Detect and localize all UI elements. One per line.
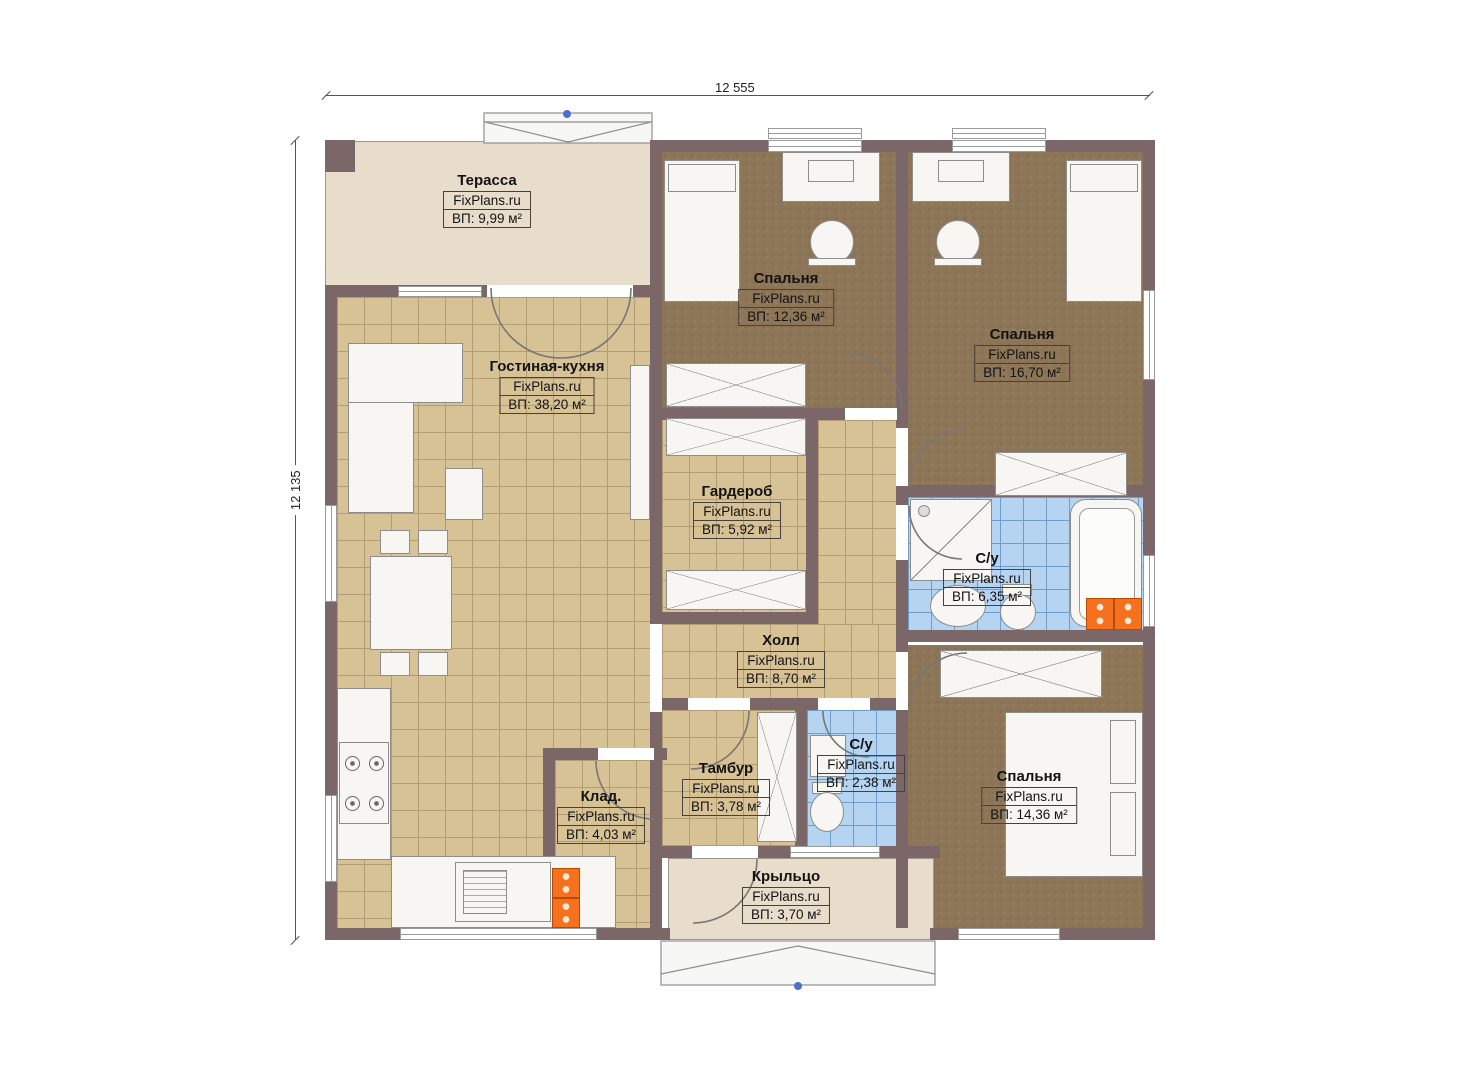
wardrobe-cabinet [666, 570, 806, 610]
room-area: ВП: 3,70 м² [743, 905, 829, 923]
laptop [808, 160, 854, 182]
wall [806, 420, 818, 612]
room-label-hall: Холл FixPlans.ru ВП: 8,70 м² [737, 632, 825, 688]
room-name: С/у [817, 736, 905, 753]
room-label-terrace: Терасса FixPlans.ru ВП: 9,99 м² [443, 172, 531, 228]
porch-steps [660, 940, 936, 986]
room-label-wardrobe: Гардероб FixPlans.ru ВП: 5,92 м² [693, 483, 781, 539]
chair [380, 652, 410, 676]
sink-drainer [463, 870, 507, 914]
brand-watermark: FixPlans.ru [975, 346, 1069, 363]
radiator [1086, 598, 1114, 630]
dimension-top-value: 12 555 [710, 80, 760, 95]
room-label-bathroom: С/у FixPlans.ru ВП: 6,35 м² [943, 550, 1031, 606]
room-area: ВП: 3,78 м² [683, 797, 769, 815]
tv-unit [630, 365, 650, 520]
brand-watermark: FixPlans.ru [444, 192, 530, 209]
window-sill [952, 128, 1046, 139]
window [398, 286, 482, 297]
door-opening [896, 505, 908, 560]
stove [339, 742, 389, 824]
room-label-living-kitchen: Гостиная-кухня FixPlans.ru ВП: 38,20 м² [490, 358, 605, 414]
bedroom3-door-arc [908, 652, 968, 712]
floor-plan: 12 555 12 135 [0, 0, 1474, 1080]
room-label-bedroom3: Спальня FixPlans.ru ВП: 14,36 м² [981, 768, 1077, 824]
toilet [810, 792, 844, 832]
window-sill [768, 128, 862, 139]
brand-watermark: FixPlans.ru [739, 290, 833, 307]
wardrobe-cabinet [666, 418, 806, 456]
laptop [938, 160, 984, 182]
door-opening [818, 698, 870, 710]
chair-back [934, 258, 982, 266]
room-area: ВП: 16,70 м² [975, 363, 1069, 381]
brand-watermark: FixPlans.ru [738, 652, 824, 669]
brand-watermark: FixPlans.ru [944, 570, 1030, 587]
brand-watermark: FixPlans.ru [694, 503, 780, 520]
room-label-tambur: Тамбур FixPlans.ru ВП: 3,78 м² [682, 760, 770, 816]
wall [650, 140, 1155, 152]
room-area: ВП: 38,20 м² [500, 395, 594, 413]
window [325, 795, 337, 882]
room-name: Спальня [974, 326, 1070, 343]
room-area: ВП: 14,36 м² [982, 805, 1076, 823]
terrace-door-arc [490, 287, 562, 359]
wall [650, 712, 662, 928]
room-area: ВП: 8,70 м² [738, 669, 824, 687]
dimension-line-top [325, 95, 1150, 96]
radiator [1114, 598, 1142, 630]
room-name: Тамбур [682, 760, 770, 777]
wall [650, 152, 662, 612]
porch-marker [794, 982, 802, 990]
pillow [1110, 720, 1136, 784]
pillow [1110, 792, 1136, 856]
room-name: Гардероб [693, 483, 781, 500]
brand-watermark: FixPlans.ru [500, 378, 594, 395]
room-name: Холл [737, 632, 825, 649]
brand-watermark: FixPlans.ru [558, 808, 644, 825]
window [325, 505, 337, 602]
room-label-bedroom2: Спальня FixPlans.ru ВП: 16,70 м² [974, 326, 1070, 382]
bedroom1-door-arc [845, 352, 903, 410]
window [1143, 290, 1155, 380]
room-name: Гостиная-кухня [490, 358, 605, 375]
terrace-post [325, 140, 355, 172]
chair [418, 652, 448, 676]
radiator [552, 898, 580, 928]
room-name: Спальня [738, 270, 834, 287]
terrace-door-arc [560, 287, 632, 359]
window [790, 846, 880, 858]
chair [380, 530, 410, 554]
window [768, 140, 862, 152]
dimension-left-value: 12 135 [288, 465, 303, 515]
brand-watermark: FixPlans.ru [683, 780, 769, 797]
door-opening [896, 428, 908, 486]
brand-watermark: FixPlans.ru [982, 788, 1076, 805]
window [952, 140, 1046, 152]
sofa-chaise [348, 343, 463, 403]
room-name: Крыльцо [742, 868, 830, 885]
room-name: Спальня [981, 768, 1077, 785]
wall [1143, 140, 1155, 940]
window [400, 928, 597, 940]
pillow [1070, 164, 1138, 192]
room-name: С/у [943, 550, 1031, 567]
brand-watermark: FixPlans.ru [743, 888, 829, 905]
room-label-porch: Крыльцо FixPlans.ru ВП: 3,70 м² [742, 868, 830, 924]
radiator [552, 868, 580, 898]
window [958, 928, 1060, 940]
room-area: ВП: 5,92 м² [694, 520, 780, 538]
room-area: ВП: 9,99 м² [444, 209, 530, 227]
canopy-marker [563, 110, 571, 118]
room-area: ВП: 6,35 м² [944, 587, 1030, 605]
room-name: Клад. [557, 788, 645, 805]
pillow [668, 164, 736, 192]
room-area: ВП: 2,38 м² [818, 773, 904, 791]
coffee-table [445, 468, 483, 520]
room-area: ВП: 4,03 м² [558, 825, 644, 843]
room-area: ВП: 12,36 м² [739, 307, 833, 325]
bedroom2-door-arc [908, 428, 968, 488]
room-label-storage: Клад. FixPlans.ru ВП: 4,03 м² [557, 788, 645, 844]
door-opening [896, 652, 908, 710]
door-opening [688, 698, 750, 710]
door-opening [692, 846, 758, 858]
chair-back [808, 258, 856, 266]
wardrobe-cabinet [995, 452, 1127, 496]
room-label-small-bathroom: С/у FixPlans.ru ВП: 2,38 м² [817, 736, 905, 792]
room-name: Терасса [443, 172, 531, 189]
room-label-bedroom1: Спальня FixPlans.ru ВП: 12,36 м² [738, 270, 834, 326]
door-opening [598, 748, 654, 760]
chair [418, 530, 448, 554]
wardrobe-cabinet [666, 363, 806, 407]
window [1143, 555, 1155, 627]
wall [650, 612, 818, 624]
brand-watermark: FixPlans.ru [818, 756, 904, 773]
dimension-line-left [295, 140, 296, 940]
wall [908, 630, 1143, 642]
dining-table [370, 556, 452, 650]
